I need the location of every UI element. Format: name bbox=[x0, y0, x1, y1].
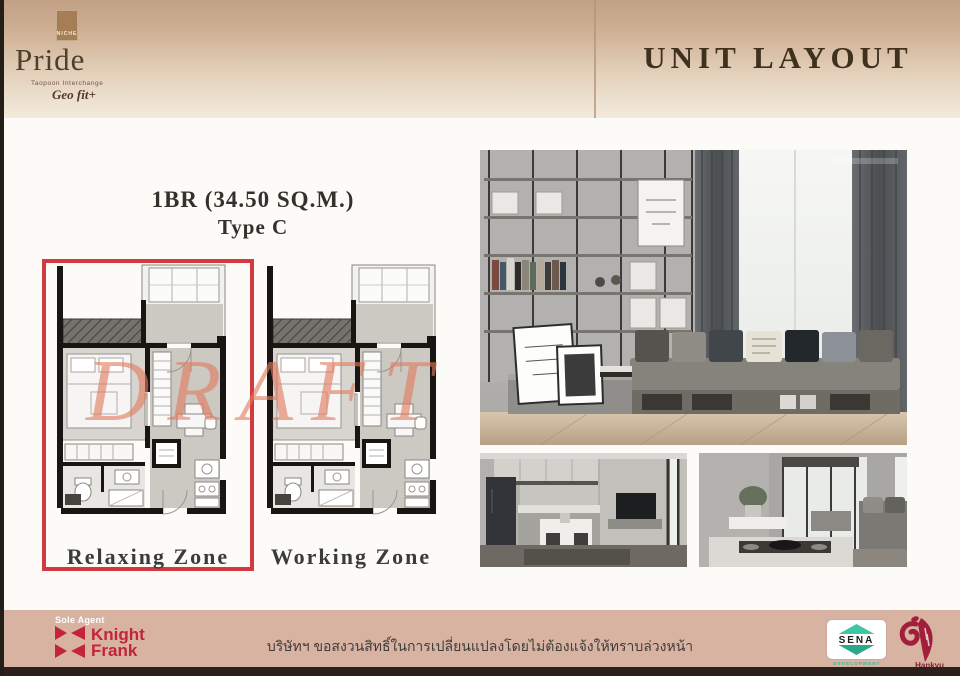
niche-badge-label: NICHE bbox=[57, 31, 78, 37]
knight-frank-word2: Frank bbox=[91, 643, 145, 659]
sena-development-label: DEVELOPMENT bbox=[827, 661, 887, 666]
footer-bottom-strip bbox=[0, 667, 960, 676]
scan-edge-left bbox=[0, 0, 4, 676]
hankyu-logo: Hankyu bbox=[894, 614, 944, 672]
photo-living-dining bbox=[699, 453, 907, 567]
sena-logo: SENA DEVELOPMENT bbox=[827, 620, 887, 666]
disclaimer-text: บริษัทฯ ขอสงวนสิทธิ์ในการเปลี่ยนแปลงโดยไ… bbox=[240, 636, 720, 658]
page-title: UNIT LAYOUT bbox=[596, 40, 960, 76]
photo-living-room-large bbox=[480, 150, 907, 445]
brand-logo: NICHE Pride Taopoon Interchange Geo fit+ bbox=[0, 0, 260, 118]
niche-badge: NICHE bbox=[56, 10, 78, 41]
tv-wall bbox=[600, 459, 687, 553]
footer-band: Sole Agent Knight Frank บริษัทฯ ขอสงวนสิ… bbox=[0, 610, 960, 676]
zone-label-relaxing: Relaxing Zone bbox=[42, 544, 254, 570]
glass-partition bbox=[783, 457, 867, 549]
dining-table-foreground bbox=[709, 537, 853, 567]
highlight-red-box bbox=[42, 259, 254, 571]
knight-frank-mark-icon bbox=[55, 626, 85, 659]
sole-agent-label: Sole Agent bbox=[55, 615, 205, 625]
unit-size: 1BR (34.50 SQ.M.) bbox=[100, 186, 406, 214]
sena-mark-icon: SENA bbox=[827, 620, 886, 659]
brand-subtitle: Taopoon Interchange bbox=[31, 80, 103, 87]
wood-floor bbox=[480, 412, 907, 445]
brand-tagline: Geo fit+ bbox=[52, 87, 96, 103]
unit-heading: 1BR (34.50 SQ.M.) Type C bbox=[100, 186, 406, 241]
photo-kitchen-dining bbox=[480, 453, 687, 567]
knight-frank-logo: Sole Agent Knight Frank bbox=[55, 615, 205, 659]
sena-name: SENA bbox=[839, 635, 875, 646]
brand-name: Pride bbox=[15, 44, 85, 75]
unit-layout-slide: NICHE Pride Taopoon Interchange Geo fit+… bbox=[0, 0, 960, 676]
unit-type: Type C bbox=[100, 214, 406, 241]
floor bbox=[853, 549, 907, 567]
zone-label-working: Working Zone bbox=[245, 544, 457, 570]
floorplan-working-zone bbox=[267, 264, 436, 519]
header-band: NICHE Pride Taopoon Interchange Geo fit+… bbox=[0, 0, 960, 118]
